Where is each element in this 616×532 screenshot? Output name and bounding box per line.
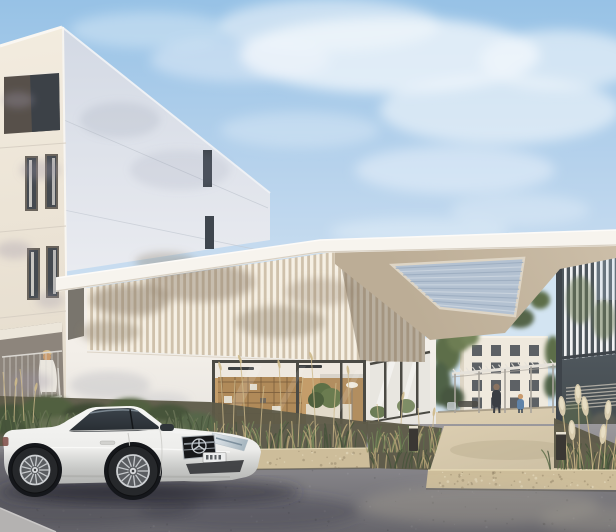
stone-speckle bbox=[335, 455, 336, 456]
stone-speckle bbox=[334, 466, 336, 468]
asphalt-speckle bbox=[399, 473, 401, 475]
stone-speckle bbox=[460, 475, 461, 476]
stone-speckle bbox=[542, 475, 544, 477]
front-wheel bbox=[108, 446, 158, 496]
stone-speckle bbox=[522, 472, 524, 474]
background-window bbox=[510, 345, 520, 356]
stone-speckle bbox=[519, 481, 521, 483]
stone-speckle bbox=[469, 474, 470, 475]
stone-speckle bbox=[500, 472, 502, 474]
stone-speckle bbox=[532, 474, 534, 476]
background-window bbox=[510, 380, 520, 391]
asphalt-speckle bbox=[485, 526, 487, 528]
stone-speckle bbox=[275, 464, 276, 465]
stone-speckle bbox=[535, 477, 538, 480]
stone-speckle bbox=[279, 457, 281, 459]
stone-speckle bbox=[450, 474, 452, 476]
stone-speckle bbox=[475, 480, 477, 482]
stone-speckle bbox=[609, 476, 611, 478]
stone-speckle bbox=[514, 480, 516, 482]
asphalt-speckle bbox=[153, 525, 155, 527]
stone-speckle bbox=[269, 462, 272, 465]
stone-speckle bbox=[584, 480, 586, 482]
bollard-light-1 bbox=[409, 426, 418, 451]
asphalt-speckle bbox=[327, 525, 328, 526]
stone-speckle bbox=[356, 466, 358, 468]
stone-speckle bbox=[331, 462, 334, 465]
side-mirror bbox=[160, 424, 174, 431]
stone-speckle bbox=[342, 459, 344, 461]
bollard-light-2 bbox=[556, 432, 566, 460]
stone-speckle bbox=[468, 481, 469, 482]
asphalt-speckle bbox=[387, 529, 389, 531]
architectural-rendering bbox=[0, 0, 616, 532]
stone-speckle bbox=[444, 476, 446, 478]
stone-speckle bbox=[495, 477, 497, 479]
stone-speckle bbox=[492, 477, 494, 479]
asphalt-speckle bbox=[374, 477, 376, 479]
asphalt-speckle bbox=[422, 486, 423, 487]
stone-speckle bbox=[550, 481, 552, 483]
stone-speckle bbox=[471, 483, 473, 485]
stone-speckle bbox=[612, 474, 614, 476]
license-plate bbox=[203, 453, 226, 463]
stone-speckle bbox=[312, 460, 313, 461]
stone-speckle bbox=[462, 472, 463, 473]
stone-speckle bbox=[536, 482, 538, 484]
stone-speckle bbox=[352, 452, 355, 455]
asphalt-speckle bbox=[279, 481, 281, 483]
grass-blade bbox=[424, 432, 425, 452]
asphalt-speckle bbox=[347, 473, 349, 475]
stone-speckle bbox=[447, 480, 450, 483]
asphalt-speckle bbox=[411, 525, 413, 527]
stone-speckle bbox=[462, 479, 465, 482]
stone-speckle bbox=[458, 474, 460, 476]
stone-speckle bbox=[610, 486, 612, 488]
stone-speckle bbox=[492, 471, 494, 473]
stone-speckle bbox=[302, 454, 304, 456]
stone-speckle bbox=[440, 484, 442, 486]
stone-speckle bbox=[607, 479, 609, 481]
asphalt-speckle bbox=[364, 520, 365, 521]
background-window bbox=[472, 380, 482, 391]
stone-speckle bbox=[343, 456, 346, 459]
distant-object bbox=[447, 402, 456, 410]
asphalt-speckle bbox=[312, 470, 314, 472]
stone-speckle bbox=[311, 452, 313, 454]
stone-speckle bbox=[570, 484, 572, 486]
stone-speckle bbox=[553, 474, 554, 475]
stone-speckle bbox=[276, 458, 278, 460]
stone-speckle bbox=[511, 484, 512, 485]
stone-speckle bbox=[467, 484, 469, 486]
stone-speckle bbox=[346, 452, 349, 455]
inner-glazing bbox=[370, 352, 430, 422]
stone-speckle bbox=[493, 479, 495, 481]
stone-speckle bbox=[524, 473, 526, 475]
stone-speckle bbox=[298, 451, 299, 452]
stone-speckle bbox=[601, 473, 602, 474]
stone-speckle bbox=[458, 475, 460, 477]
stone-speckle bbox=[566, 485, 568, 487]
stone-speckle bbox=[481, 479, 483, 481]
stone-speckle bbox=[544, 486, 546, 488]
stone-speckle bbox=[339, 457, 341, 459]
stone-speckle bbox=[548, 486, 549, 487]
stone-speckle bbox=[591, 486, 593, 488]
stone-speckle bbox=[320, 464, 323, 467]
stone-speckle bbox=[604, 481, 606, 483]
stone-speckle bbox=[558, 474, 560, 476]
stone-speckle bbox=[314, 451, 316, 453]
stone-speckle bbox=[489, 483, 491, 485]
stone-speckle bbox=[574, 472, 575, 473]
background-window bbox=[491, 345, 501, 356]
stone-speckle bbox=[559, 475, 562, 478]
stone-speckle bbox=[334, 462, 337, 465]
stone-speckle bbox=[338, 467, 339, 468]
side-window bbox=[205, 216, 214, 249]
asphalt-speckle bbox=[415, 528, 416, 529]
stone-speckle bbox=[587, 484, 589, 486]
stone-speckle bbox=[442, 472, 443, 473]
stone-speckle bbox=[577, 484, 579, 486]
stone-speckle bbox=[302, 459, 305, 462]
rear-wheel bbox=[12, 447, 58, 493]
asphalt-speckle bbox=[77, 528, 79, 530]
stone-speckle bbox=[326, 457, 328, 459]
asphalt-speckle bbox=[150, 527, 151, 528]
stone-speckle bbox=[454, 483, 456, 485]
background-window bbox=[472, 345, 482, 356]
stone-speckle bbox=[528, 479, 530, 481]
stone-speckle bbox=[267, 461, 269, 463]
asphalt-speckle bbox=[309, 485, 311, 487]
stone-speckle bbox=[480, 475, 482, 477]
stone-speckle bbox=[560, 478, 562, 480]
stone-speckle bbox=[359, 453, 361, 455]
stone-speckle bbox=[439, 482, 441, 484]
taillight bbox=[3, 437, 9, 446]
asphalt-speckle bbox=[601, 496, 603, 498]
stone-speckle bbox=[457, 480, 459, 482]
stone-speckle bbox=[329, 463, 330, 464]
background-window bbox=[529, 345, 539, 356]
stone-speckle bbox=[284, 461, 286, 463]
scene-canvas bbox=[0, 0, 616, 532]
door-handle bbox=[100, 441, 115, 445]
stone-speckle bbox=[571, 482, 572, 483]
courtyard-bench bbox=[458, 401, 478, 407]
grass-blade bbox=[412, 452, 413, 468]
asphalt-speckle bbox=[297, 488, 299, 490]
